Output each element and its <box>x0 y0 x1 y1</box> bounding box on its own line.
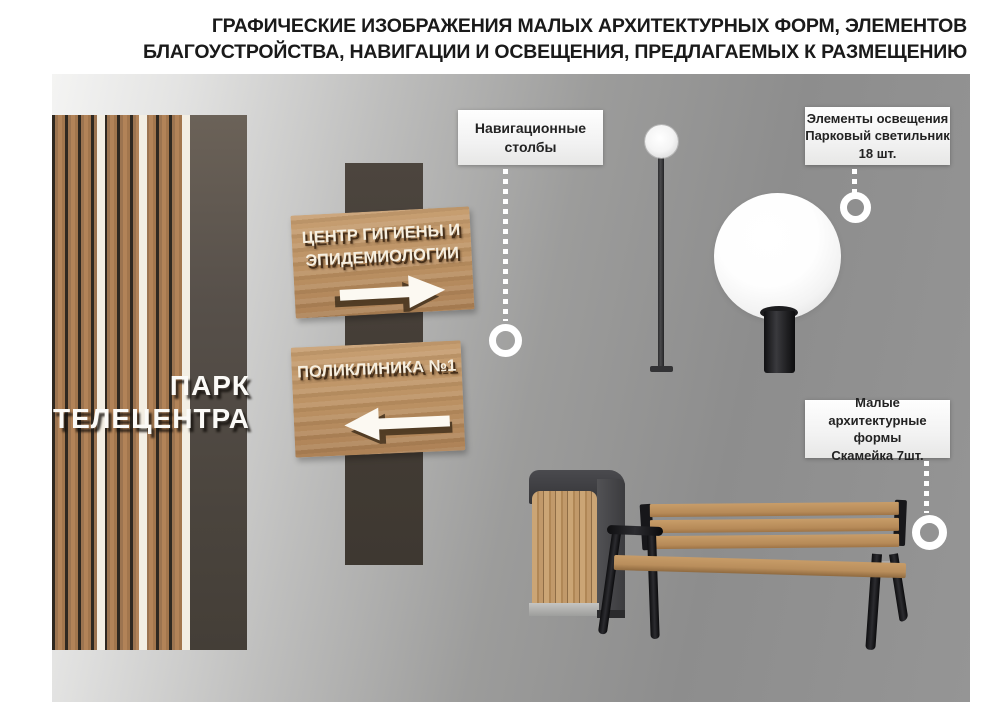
callout-lighting-line-1: Элементы освещения <box>805 110 950 128</box>
sign2-line-1: ПОЛИКЛИНИКА №1 <box>291 354 462 383</box>
callout-maf-line-1: Малые архитектурные <box>805 394 950 429</box>
wall-sign-line-2: ТЕЛЕЦЕНТРА <box>53 402 250 435</box>
callout-maf-dotted-line <box>924 461 929 513</box>
callout-maf-line-2: формы <box>805 429 950 447</box>
sign-center-gigieny: ЦЕНТР ГИГИЕНЫ И ЭПИДЕМИОЛОГИИ <box>290 206 474 318</box>
wall-sign-line-1: ПАРК <box>53 369 250 402</box>
park-luminaire-post <box>764 311 795 373</box>
callout-navigation-line-1: Навигационные <box>458 119 603 138</box>
bench-backrest <box>641 500 907 552</box>
trash-bin-base <box>529 603 599 616</box>
presentation-slide: ГРАФИЧЕСКИЕ ИЗОБРАЖЕНИЯ МАЛЫХ АРХИТЕКТУР… <box>0 0 1000 711</box>
arrow-left-icon <box>341 401 453 446</box>
wall-sign-text: ПАРК ТЕЛЕЦЕНТРА <box>53 369 250 435</box>
park-entrance-wall: ПАРК ТЕЛЕЦЕНТРА <box>52 115 247 650</box>
sign-poliklinika: ПОЛИКЛИНИКА №1 <box>291 340 466 457</box>
arrow-right-icon <box>334 270 452 316</box>
bench-back-slat <box>650 502 899 517</box>
page-title: ГРАФИЧЕСКИЕ ИЗОБРАЖЕНИЯ МАЛЫХ АРХИТЕКТУР… <box>47 13 967 65</box>
callout-lighting-line-3: 18 шт. <box>805 145 950 163</box>
street-lamp-base <box>650 366 673 372</box>
bench-back-slat <box>650 518 899 533</box>
bench-back-slat <box>650 534 899 549</box>
callout-navigation-line-2: столбы <box>458 138 603 157</box>
callout-lighting-line-2: Парковый светильник <box>805 127 950 145</box>
callout-navigation-dotted-line <box>503 169 508 321</box>
trash-bin-wood-front <box>532 491 597 605</box>
callout-navigation: Навигационные столбы <box>458 110 603 165</box>
street-lamp-pole <box>658 156 664 368</box>
callout-navigation-ring-marker <box>489 324 522 357</box>
title-line-2: БЛАГОУСТРОЙСТВА, НАВИГАЦИИ И ОСВЕЩЕНИЯ, … <box>47 39 967 65</box>
callout-maf: Малые архитектурные формы Скамейка 7шт. <box>805 400 950 458</box>
street-lamp-globe <box>645 125 678 158</box>
callout-lighting-ring-marker <box>840 192 871 223</box>
callout-maf-ring-marker <box>912 515 947 550</box>
bench-armrest <box>607 525 663 536</box>
callout-lighting: Элементы освещения Парковый светильник 1… <box>805 107 950 165</box>
park-luminaire-globe <box>714 193 841 320</box>
title-line-1: ГРАФИЧЕСКИЕ ИЗОБРАЖЕНИЯ МАЛЫХ АРХИТЕКТУР… <box>47 13 967 39</box>
